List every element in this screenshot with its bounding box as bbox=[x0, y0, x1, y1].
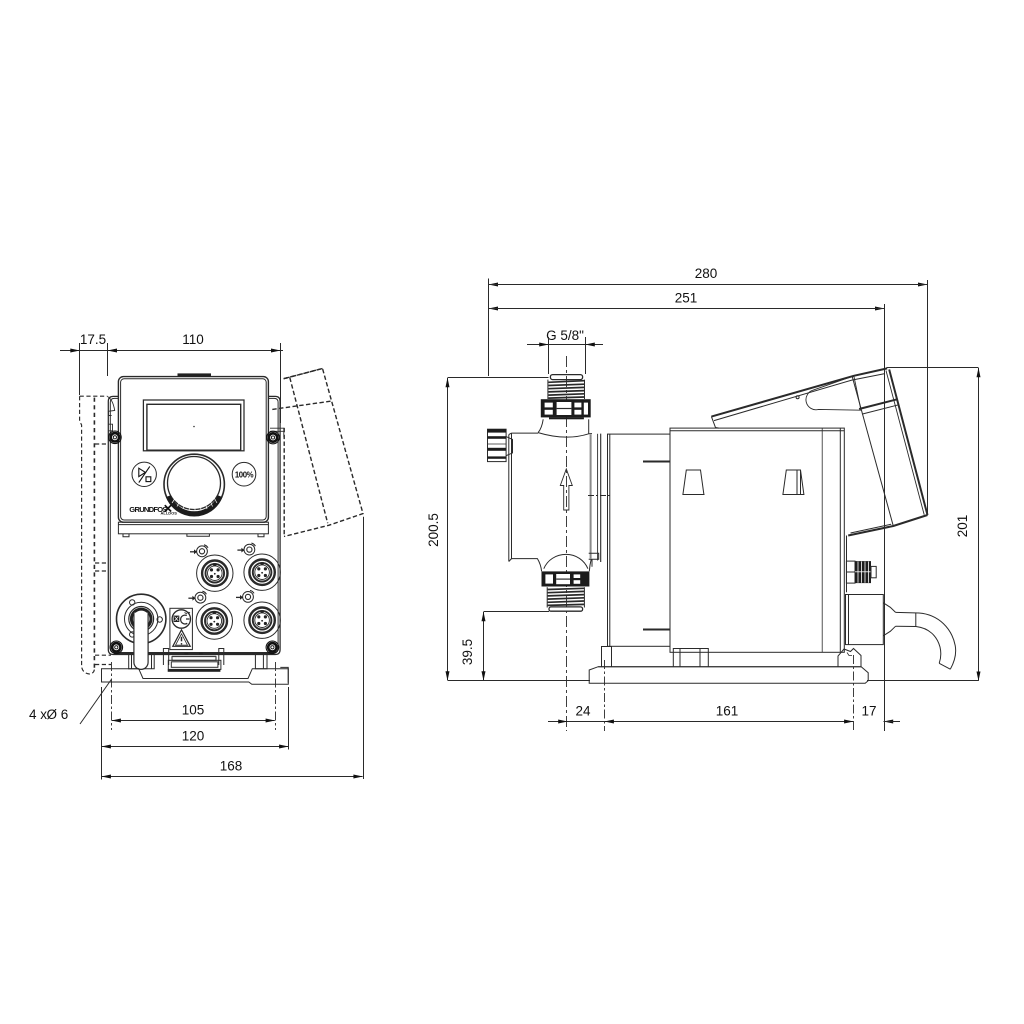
svg-text:161: 161 bbox=[716, 704, 739, 719]
svg-text:200.5: 200.5 bbox=[426, 513, 441, 547]
svg-text:G 5/8": G 5/8" bbox=[546, 328, 584, 343]
svg-text:ALLDOS: ALLDOS bbox=[161, 511, 178, 516]
svg-text:168: 168 bbox=[220, 758, 243, 773]
svg-text:120: 120 bbox=[182, 728, 205, 743]
svg-text:Ø 6: Ø 6 bbox=[47, 707, 69, 722]
svg-text:105: 105 bbox=[182, 703, 205, 718]
svg-text:280: 280 bbox=[695, 266, 718, 281]
svg-text:24: 24 bbox=[575, 704, 591, 719]
svg-text:100%: 100% bbox=[235, 471, 254, 480]
svg-text:39.5: 39.5 bbox=[460, 639, 475, 665]
svg-text:251: 251 bbox=[675, 290, 698, 305]
svg-text:4 x: 4 x bbox=[29, 707, 47, 722]
svg-text:17.5: 17.5 bbox=[80, 332, 106, 347]
svg-text:201: 201 bbox=[955, 515, 970, 538]
svg-text:17: 17 bbox=[861, 704, 876, 719]
svg-text:110: 110 bbox=[182, 332, 204, 347]
